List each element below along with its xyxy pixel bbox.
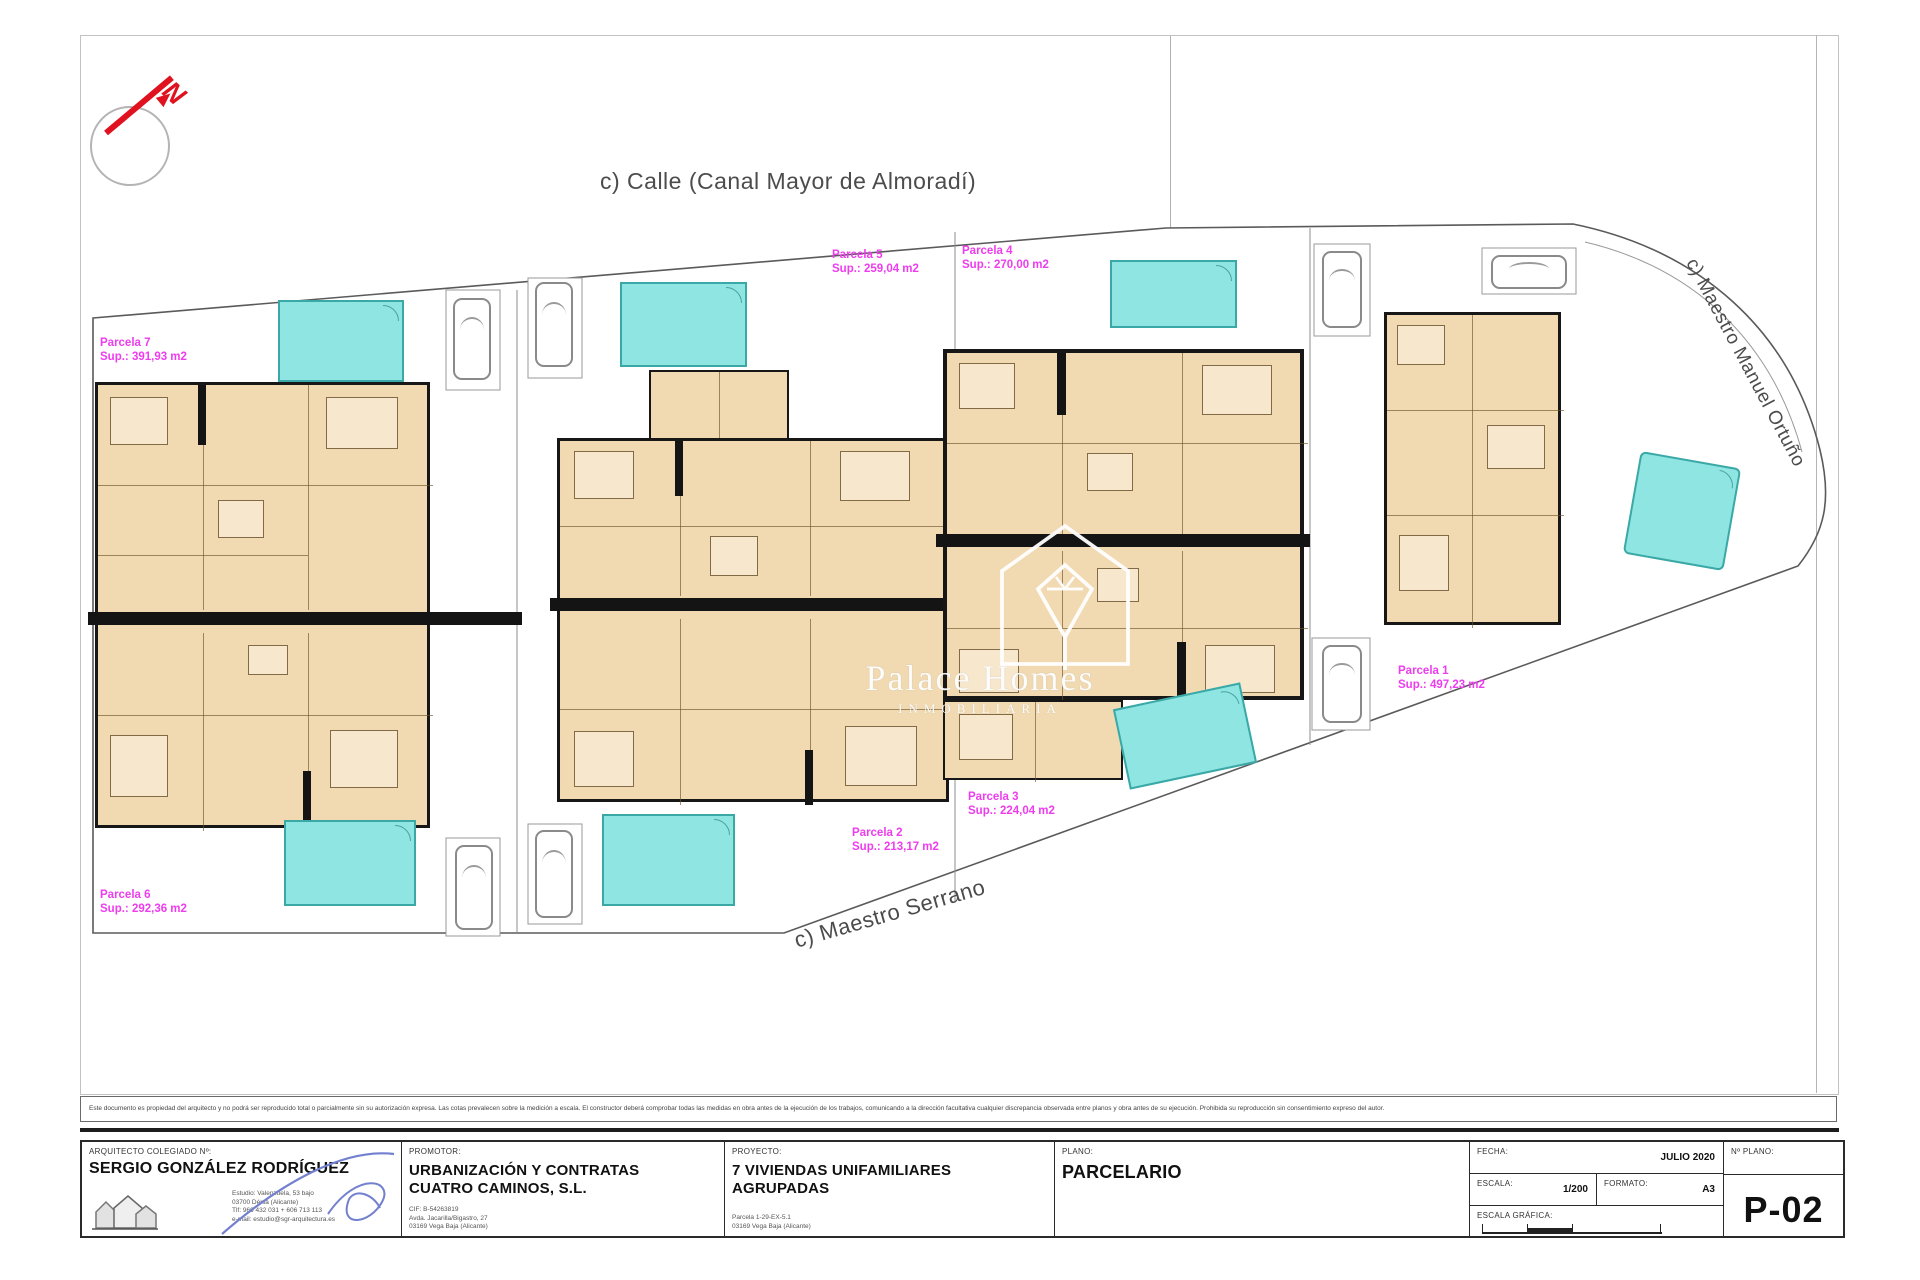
escala-grafica-label: ESCALA GRÁFICA: [1477, 1211, 1553, 1220]
car [535, 830, 573, 918]
furniture [959, 714, 1013, 760]
pool-steps-arc [367, 305, 399, 337]
car [453, 298, 491, 380]
fecha-value: JULIO 2020 [1661, 1152, 1715, 1163]
plan-label: PLANO: [1062, 1147, 1093, 1156]
parcel-area: Sup.: 497,23 m2 [1398, 678, 1485, 692]
pool-steps-arc [1205, 688, 1243, 726]
parcel-area: Sup.: 213,17 m2 [852, 840, 939, 854]
parcel-name: Parcela 4 [962, 244, 1049, 258]
wall-line [810, 441, 811, 596]
escala-box: ESCALA: 1/200 [1470, 1174, 1597, 1205]
furniture [840, 451, 910, 501]
car [535, 282, 573, 367]
plan-number-value: P-02 [1724, 1189, 1843, 1231]
wall-line [98, 715, 433, 716]
parcel-area: Sup.: 292,36 m2 [100, 902, 187, 916]
furniture [1397, 325, 1445, 365]
car [1322, 645, 1362, 723]
project-name-1: 7 VIVIENDAS UNIFAMILIARES [732, 1162, 951, 1179]
party-wall-spine [936, 534, 1310, 547]
house-cluster-left [95, 382, 430, 828]
promoter-name-1: URBANIZACIÓN Y CONTRATAS [409, 1162, 639, 1179]
parcel-name: Parcela 6 [100, 888, 187, 902]
detail-line: CIF: B-54263819 [409, 1206, 488, 1215]
furniture [218, 500, 264, 538]
wall-line [947, 628, 1308, 629]
house-right-extension [943, 700, 1123, 780]
party-wall-spine [550, 598, 956, 611]
parcel-name: Parcela 3 [968, 790, 1055, 804]
pool [284, 820, 416, 906]
escala-label: ESCALA: [1477, 1179, 1513, 1188]
parcel-name: Parcela 2 [852, 826, 939, 840]
wall-line [1387, 515, 1564, 516]
title-block: ARQUITECTO COLEGIADO Nº: SERGIO GONZÁLEZ… [80, 1140, 1845, 1238]
wall-line [1035, 702, 1036, 782]
wall-line [98, 485, 433, 486]
project-name-2: AGRUPADAS [732, 1180, 829, 1197]
plan-number-header: Nº PLANO: [1724, 1142, 1843, 1175]
car [455, 845, 493, 930]
scale-tick [1572, 1224, 1573, 1232]
project-cell: PROYECTO: 7 VIVIENDAS UNIFAMILIARES AGRU… [725, 1142, 1055, 1236]
promoter-name-2: CUATRO CAMINOS, S.L. [409, 1180, 587, 1197]
wall-line [1472, 315, 1473, 628]
parcel-label: Parcela 6 Sup.: 292,36 m2 [100, 888, 187, 916]
wall-line [203, 633, 204, 831]
furniture [110, 735, 168, 797]
house-single-right [1384, 312, 1561, 625]
furniture [1487, 425, 1545, 469]
furniture [959, 649, 1019, 693]
project-details: Parcela 1-29-EX-5.1 03169 Vega Baja (Ali… [732, 1214, 811, 1231]
parcel-name: Parcela 1 [1398, 664, 1485, 678]
pool-steps-arc [698, 819, 730, 851]
parcel-name: Parcela 5 [832, 248, 919, 262]
furniture [110, 397, 168, 445]
furniture [330, 730, 398, 788]
formato-label: FORMATO: [1604, 1179, 1648, 1188]
wall-segment [805, 750, 813, 805]
pool-steps-arc [1200, 265, 1232, 297]
detail-line: Avda. Jacarilla/Bigastro, 27 [409, 1215, 488, 1224]
wall-line [560, 709, 952, 710]
north-arrow-circle [90, 106, 170, 186]
furniture [1087, 453, 1133, 491]
house-middle-wing [649, 370, 789, 442]
graphic-scale-bar [1482, 1224, 1662, 1234]
plan-number-label: Nº PLANO: [1731, 1147, 1774, 1156]
car [1322, 251, 1362, 328]
formato-box: FORMATO: A3 [1597, 1174, 1723, 1205]
pool-steps-arc [1698, 467, 1735, 504]
promoter-details: CIF: B-54263819 Avda. Jacarilla/Bigastro… [409, 1206, 488, 1232]
parcel-label: Parcela 5 Sup.: 259,04 m2 [832, 248, 919, 276]
wall-line [680, 619, 681, 805]
furniture [574, 451, 634, 499]
furniture [1202, 365, 1272, 415]
furniture [326, 397, 398, 449]
party-wall-spine [88, 612, 522, 625]
escala-value: 1/200 [1563, 1184, 1588, 1195]
pool-steps-arc [379, 825, 411, 857]
wall-segment [1057, 353, 1066, 415]
furniture [710, 536, 758, 576]
wall-line [308, 385, 309, 610]
furniture [1399, 535, 1449, 591]
parcel-label: Parcela 4 Sup.: 270,00 m2 [962, 244, 1049, 272]
car [1491, 255, 1567, 289]
furniture [1097, 568, 1139, 602]
wall-line [560, 526, 952, 527]
pool [602, 814, 735, 906]
plan-name: PARCELARIO [1062, 1162, 1182, 1183]
wall-line [1387, 410, 1564, 411]
scale-tick [1482, 1224, 1483, 1232]
pool-steps-arc [710, 287, 742, 319]
wall-segment [675, 441, 683, 496]
parcel-label: Parcela 3 Sup.: 224,04 m2 [968, 790, 1055, 818]
wall-line [947, 443, 1308, 444]
scale-fill-segment [1527, 1228, 1572, 1232]
fecha-row: FECHA: JULIO 2020 [1470, 1142, 1723, 1174]
promoter-cell: PROMOTOR: URBANIZACIÓN Y CONTRATAS CUATR… [402, 1142, 725, 1236]
furniture [248, 645, 288, 675]
detail-line: 03169 Vega Baja (Alicante) [732, 1223, 811, 1232]
signature [82, 1142, 402, 1238]
meta-cell: FECHA: JULIO 2020 ESCALA: 1/200 FORMATO:… [1470, 1142, 1724, 1236]
furniture [845, 726, 917, 786]
wall-line [98, 555, 308, 556]
project-label: PROYECTO: [732, 1147, 782, 1156]
furniture [959, 363, 1015, 409]
plan-number-cell: Nº PLANO: P-02 [1724, 1142, 1843, 1236]
parcel-area: Sup.: 270,00 m2 [962, 258, 1049, 272]
furniture [574, 731, 634, 787]
parcel-label: Parcela 2 Sup.: 213,17 m2 [852, 826, 939, 854]
parcel-area: Sup.: 224,04 m2 [968, 804, 1055, 818]
parcel-label: Parcela 1 Sup.: 497,23 m2 [1398, 664, 1485, 692]
disclaimer-text: Este documento es propiedad del arquitec… [80, 1096, 1837, 1122]
formato-value: A3 [1702, 1184, 1715, 1195]
architect-cell: ARQUITECTO COLEGIADO Nº: SERGIO GONZÁLEZ… [82, 1142, 402, 1236]
pool [620, 282, 747, 367]
wall-line [719, 372, 720, 444]
divider-rule [80, 1128, 1839, 1132]
pool [278, 300, 404, 382]
promoter-label: PROMOTOR: [409, 1147, 461, 1156]
fecha-label: FECHA: [1477, 1147, 1508, 1156]
house-cluster-middle [557, 438, 949, 802]
pool [1623, 451, 1742, 571]
wall-segment [198, 385, 206, 445]
pool [1110, 260, 1237, 328]
escala-grafica-row: ESCALA GRÁFICA: [1470, 1206, 1723, 1240]
parcel-name: Parcela 7 [100, 336, 187, 350]
parcel-label: Parcela 7 Sup.: 391,93 m2 [100, 336, 187, 364]
parcel-area: Sup.: 259,04 m2 [832, 262, 919, 276]
parcel-area: Sup.: 391,93 m2 [100, 350, 187, 364]
scale-tick [1660, 1224, 1661, 1232]
street-label-top: c) Calle (Canal Mayor de Almoradí) [600, 168, 976, 195]
escala-formato-row: ESCALA: 1/200 FORMATO: A3 [1470, 1174, 1723, 1206]
house-cluster-right [943, 349, 1304, 700]
detail-line: 03169 Vega Baja (Alicante) [409, 1223, 488, 1232]
plan-cell: PLANO: PARCELARIO [1055, 1142, 1470, 1236]
detail-line: Parcela 1-29-EX-5.1 [732, 1214, 811, 1223]
